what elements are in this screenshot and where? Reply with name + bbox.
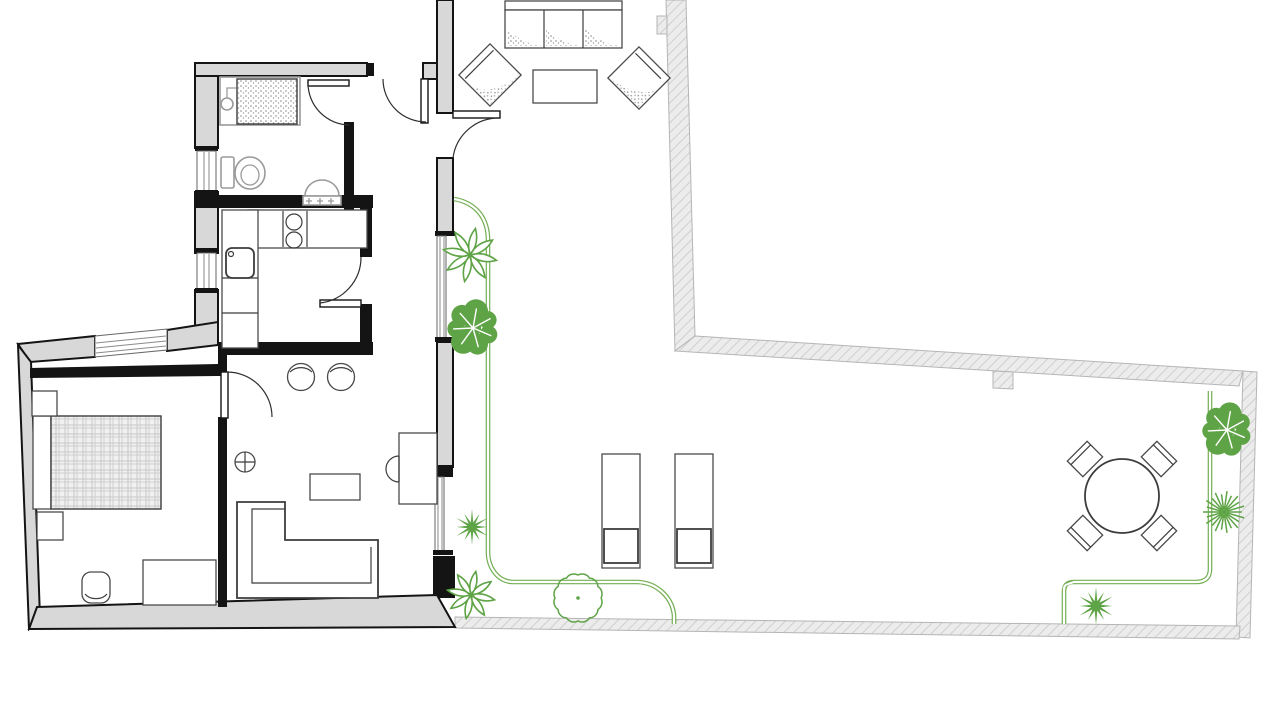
wall-northwest-diagonal-right (167, 322, 218, 351)
door-terrace-leaf (453, 111, 500, 118)
boundary-wall-north-vertical (666, 0, 695, 351)
wall-north-cap (367, 63, 374, 76)
bed-headboard (33, 416, 51, 509)
desk (399, 433, 437, 504)
nightstand-top (32, 391, 57, 416)
patio-coffee-table (533, 70, 597, 103)
door-kitchen-swing (320, 257, 361, 303)
window-west-2 (197, 253, 216, 289)
wall-east-pillar-2 (437, 158, 453, 235)
layer-furniture (32, 210, 437, 605)
bed-mattress (51, 416, 161, 509)
window-west-1-cap-top (195, 146, 218, 151)
door-bedroom-leaf (221, 372, 228, 418)
plant-star-south-rays (1080, 587, 1113, 625)
washbasin-bowl (305, 180, 339, 196)
bedroom-bench (143, 560, 216, 605)
living-coffee-table (310, 474, 360, 500)
plant-dandelion-east-center (1222, 510, 1227, 515)
plant-star-south (1080, 587, 1113, 625)
window-east-2-cap-bottom (433, 550, 453, 555)
wall-north-bathroom (195, 63, 367, 76)
patio-sofa-back (505, 1, 622, 10)
boundary-wall-mid-horizontal (675, 336, 1243, 386)
sun-lounger-2-seat (677, 529, 711, 563)
plant-star-west-rays (456, 509, 487, 545)
window-bedroom-northwest (95, 329, 167, 357)
wall-north-stub (423, 63, 437, 79)
wall-east-corridor (437, 0, 453, 113)
boundary-wall-notch-mid (993, 371, 1013, 389)
floor-plan-svg (0, 0, 1280, 720)
wall-bedroom-north (30, 364, 218, 378)
toilet-bowl (235, 157, 265, 189)
shower-floor (237, 79, 297, 124)
kitchen-sink (226, 248, 254, 278)
sun-lounger-1-seat (604, 529, 638, 563)
window-west-2-cap-top (195, 248, 218, 253)
boundary-wall-south (455, 617, 1240, 639)
wall-east-pillar-3 (437, 342, 453, 467)
plant-star-west (456, 509, 487, 545)
door-bathroom-leaf (308, 80, 349, 86)
boundary-wall-notch-top (657, 16, 667, 34)
door-bathroom-swing (308, 83, 349, 125)
kitchen-counter-west (222, 210, 258, 348)
door-terrace-swing (453, 118, 500, 158)
door-kitchen-leaf (320, 300, 361, 307)
wall-west-upper (195, 76, 218, 148)
wall-bathroom-right (344, 122, 354, 212)
desk-chair (386, 456, 399, 482)
window-west-1 (197, 151, 216, 191)
window-west-2-cap-bottom (195, 288, 218, 293)
window-east-1-cap-top (435, 231, 455, 236)
dining-table-round (1085, 459, 1159, 533)
wall-northwest-diagonal-left (18, 336, 95, 362)
floor-plan-stage (0, 0, 1280, 720)
plant-tree-upper-branch (454, 328, 473, 329)
door-vestibule-swing (383, 79, 426, 122)
nightstand-bottom (37, 512, 63, 540)
toilet-tank (221, 157, 234, 188)
window-west-1-cap-bottom (195, 190, 218, 195)
plant-bush-outline-center (576, 596, 580, 600)
layer-fixtures (220, 77, 341, 205)
plan-render-root (18, 0, 1257, 639)
layer-outdoor (459, 1, 1177, 568)
shower-head (221, 98, 233, 110)
layer-plants (444, 229, 1251, 626)
plant-tree-east-branch (1208, 430, 1227, 431)
door-bedroom-swing (227, 372, 272, 417)
wall-bedroom-living-divider (218, 417, 227, 607)
layer-greenPaths (454, 199, 1210, 624)
door-vestibule-leaf (421, 79, 428, 123)
